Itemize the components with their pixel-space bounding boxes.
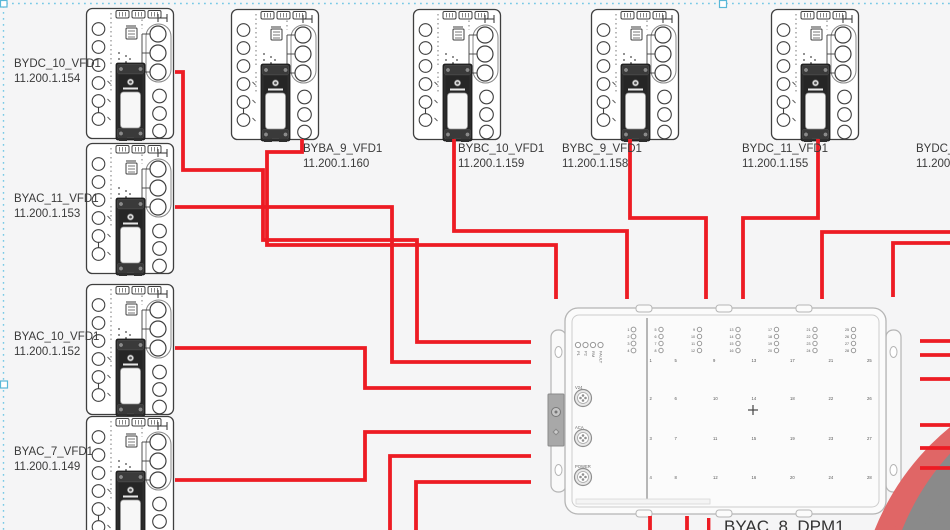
dpm-port-number: 27 xyxy=(867,436,872,441)
dpm-port-number: 17 xyxy=(790,358,795,363)
vfd-device-BYBC_10_VFD1[interactable] xyxy=(414,10,501,143)
dpm-port-number: 21 xyxy=(829,358,834,363)
dpm-port-number: 26 xyxy=(867,396,872,401)
dpm-port-number: 25 xyxy=(867,358,872,363)
dpm-led-number: 24 xyxy=(807,349,811,353)
dpm-led-number: 6 xyxy=(655,335,657,339)
device-ip: 11.200.1.149 xyxy=(14,460,93,475)
vfd-device-BYBA_9_VFD1[interactable] xyxy=(232,10,319,143)
device-ip: 11.200.1.153 xyxy=(14,207,99,222)
dpm-port-number: 14 xyxy=(752,396,757,401)
dpm-led-number: 10 xyxy=(691,335,695,339)
dpm-aux-port-V24 xyxy=(575,390,592,407)
vfd-device-BYAC_7_VFD1[interactable] xyxy=(87,417,174,530)
dpm-status-led-label: P1 xyxy=(576,351,581,357)
dpm-port-number: 15 xyxy=(752,436,757,441)
device-name: BYAC_7_VFD1 xyxy=(14,445,93,460)
dpm-led-number: 23 xyxy=(807,342,811,346)
device-label-BYBA_9_VFD1[interactable]: BYBA_9_VFD111.200.1.160 xyxy=(303,142,382,171)
cable-offscreen-bottom-to-dpm-left6[interactable] xyxy=(416,482,531,530)
device-name: BYAC_10_VFD1 xyxy=(14,330,99,345)
dpm-led-number: 1 xyxy=(627,328,629,332)
dpm-led-number: 22 xyxy=(807,335,811,339)
device-label-BYAC_10_VFD1[interactable]: BYAC_10_VFD111.200.1.152 xyxy=(14,330,99,359)
device-name: BYBC_10_VFD1 xyxy=(458,142,544,157)
diagram-canvas: P1P2RMFAULT1234V24ACAPOWER12345566778899… xyxy=(0,0,950,530)
dpm-led-number: 11 xyxy=(691,342,695,346)
device-ip: 11.200.1.158 xyxy=(562,157,642,172)
device-label-BYBC_10_VFD1[interactable]: BYBC_10_VFD111.200.1.159 xyxy=(458,142,544,171)
device-name: BYDC_10_VFD1 xyxy=(14,57,101,72)
device-label-BYAC_11_VFD1[interactable]: BYAC_11_VFD111.200.1.153 xyxy=(14,192,99,221)
dpm-led-number: 18 xyxy=(768,335,772,339)
dpm-led-number: 28 xyxy=(845,349,849,353)
dpm-aux-port-POWER xyxy=(575,469,592,486)
device-name: BYDC_12 xyxy=(916,142,950,157)
dpm-led-number: 13 xyxy=(730,328,734,332)
selection-handle-corner[interactable] xyxy=(1,1,8,8)
device-ip: 11.200.1.159 xyxy=(458,157,544,172)
dpm-led-number: 14 xyxy=(730,335,734,339)
vfd-device-BYDC_11_VFD1[interactable] xyxy=(772,10,859,143)
dpm-status-led-label: P2 xyxy=(584,351,589,357)
device-label-BYDC_12[interactable]: BYDC_1211.200.1 xyxy=(916,142,950,171)
dpm-led-number: 3 xyxy=(627,342,629,346)
dpm-led-number: 15 xyxy=(730,342,734,346)
dpm-port-number: 11 xyxy=(713,436,718,441)
cable-byac10-to-dpm-left3[interactable] xyxy=(175,348,531,388)
dpm-led-number: 27 xyxy=(845,342,849,346)
device-name: BYBA_9_VFD1 xyxy=(303,142,382,157)
dpm-led-number: 20 xyxy=(768,349,772,353)
dpm-led-number: 25 xyxy=(845,328,849,332)
dpm-port-number: 19 xyxy=(790,436,795,441)
dpm-status-led-label: RM xyxy=(591,351,596,357)
dpm-led-number: 5 xyxy=(655,328,657,332)
device-label-BYDC_10_VFD1[interactable]: BYDC_10_VFD111.200.1.154 xyxy=(14,57,101,86)
device-name: BYAC_11_VFD1 xyxy=(14,192,99,207)
dpm-port-number: 20 xyxy=(790,475,795,480)
dpm-port-number: 13 xyxy=(752,358,757,363)
dpm-led-number: 7 xyxy=(655,342,657,346)
vfd-device-BYAC_11_VFD1[interactable] xyxy=(87,144,174,277)
dpm-led-number: 12 xyxy=(691,349,695,353)
dpm-led-number: 4 xyxy=(627,349,629,353)
vfd-device-BYAC_10_VFD1[interactable] xyxy=(87,285,174,418)
dpm-aux-port-ACA xyxy=(575,430,592,447)
vfd-device-BYBC_9_VFD1[interactable] xyxy=(592,10,679,143)
dpm-port-number: 10 xyxy=(713,396,718,401)
device-name: BYBC_9_VFD1 xyxy=(562,142,642,157)
device-label-BYDC_11_VFD1[interactable]: BYDC_11_VFD111.200.1.155 xyxy=(742,142,828,171)
dpm-led-number: 21 xyxy=(807,328,811,332)
dpm-led-number: 8 xyxy=(655,349,657,353)
dpm-port-number: 18 xyxy=(790,396,795,401)
dpm-port-number: 16 xyxy=(752,475,757,480)
selection-handle-left[interactable] xyxy=(1,381,8,388)
diagram-scene: P1P2RMFAULT1234V24ACAPOWER12345566778899… xyxy=(0,0,950,530)
dpm-port-number: 24 xyxy=(829,475,834,480)
dpm-label[interactable]: BYAC_8_DPM1 xyxy=(724,517,845,530)
device-name: BYDC_11_VFD1 xyxy=(742,142,828,157)
cable-bydc12-to-dpm-top6[interactable] xyxy=(893,243,950,297)
device-label-BYAC_7_VFD1[interactable]: BYAC_7_VFD111.200.1.149 xyxy=(14,445,93,474)
device-ip: 11.200.1.154 xyxy=(14,72,101,87)
dpm-led-number: 17 xyxy=(768,328,772,332)
device-label-BYBC_9_VFD1[interactable]: BYBC_9_VFD111.200.1.158 xyxy=(562,142,642,171)
device-ip: 11.200.1 xyxy=(916,157,950,172)
dpm-port-number: 12 xyxy=(713,475,718,480)
dpm-port-number: 22 xyxy=(829,396,834,401)
dpm-led-number: 16 xyxy=(730,349,734,353)
dpm-led-number: 19 xyxy=(768,342,772,346)
dpm-body xyxy=(565,308,886,514)
dpm-led-number: 26 xyxy=(845,335,849,339)
dpm-status-led-label: FAULT xyxy=(599,351,604,364)
device-ip: 11.200.1.160 xyxy=(303,157,382,172)
dpm-port-number: 23 xyxy=(829,436,834,441)
cable-offscreen-bottom-to-dpm-left5[interactable] xyxy=(390,456,531,530)
dpm-led-number: 2 xyxy=(627,335,629,339)
device-ip: 11.200.1.152 xyxy=(14,345,99,360)
dpm-mount-clamp xyxy=(548,394,564,446)
device-ip: 11.200.1.155 xyxy=(742,157,828,172)
dpm-device[interactable]: P1P2RMFAULT1234V24ACAPOWER12345566778899… xyxy=(548,305,950,530)
dpm-port-number: 28 xyxy=(867,475,872,480)
dpm-led-number: 9 xyxy=(693,328,695,332)
dpm-label-tick xyxy=(707,518,710,530)
selection-handle-top[interactable] xyxy=(720,1,727,8)
